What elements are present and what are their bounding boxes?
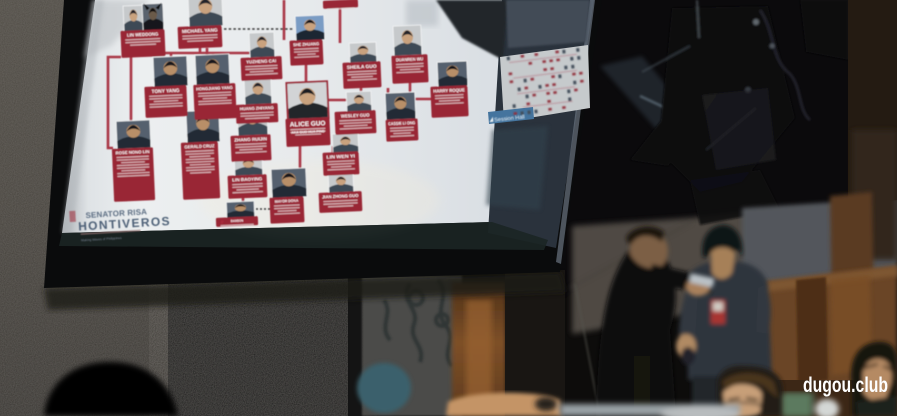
svg-text:TONY YANG: TONY YANG xyxy=(151,88,179,95)
svg-text:dugou.club: dugou.club xyxy=(803,374,888,397)
svg-text:BAMBON: BAMBON xyxy=(231,219,244,224)
